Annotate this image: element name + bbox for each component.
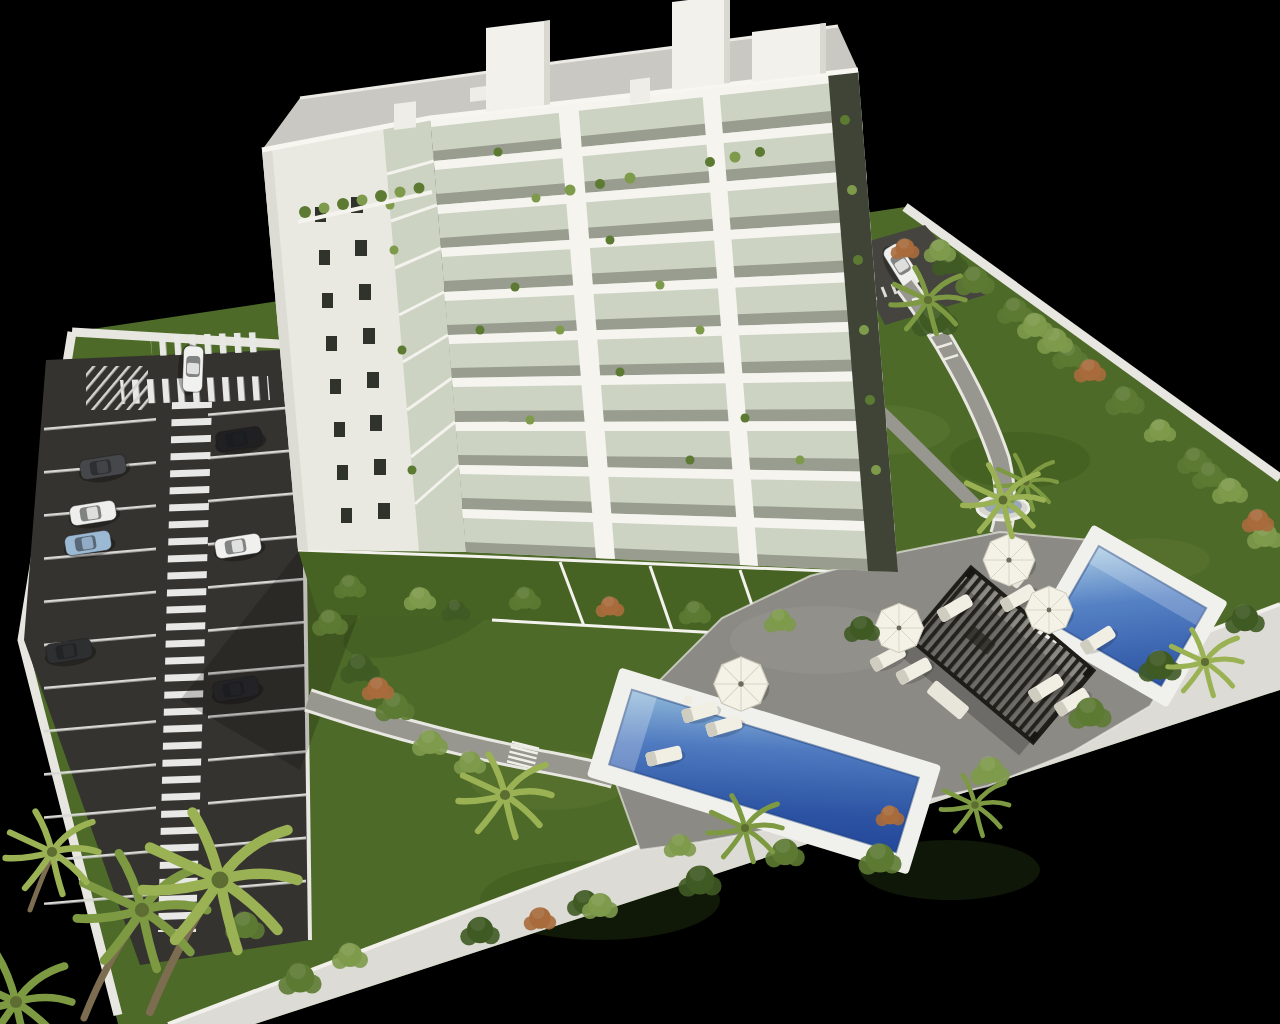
crosswalk-entrance [150, 332, 262, 356]
side-table [684, 696, 693, 705]
render-canvas [0, 0, 1280, 1024]
hatched-zone [86, 366, 148, 410]
scene-svg [0, 0, 1280, 1024]
